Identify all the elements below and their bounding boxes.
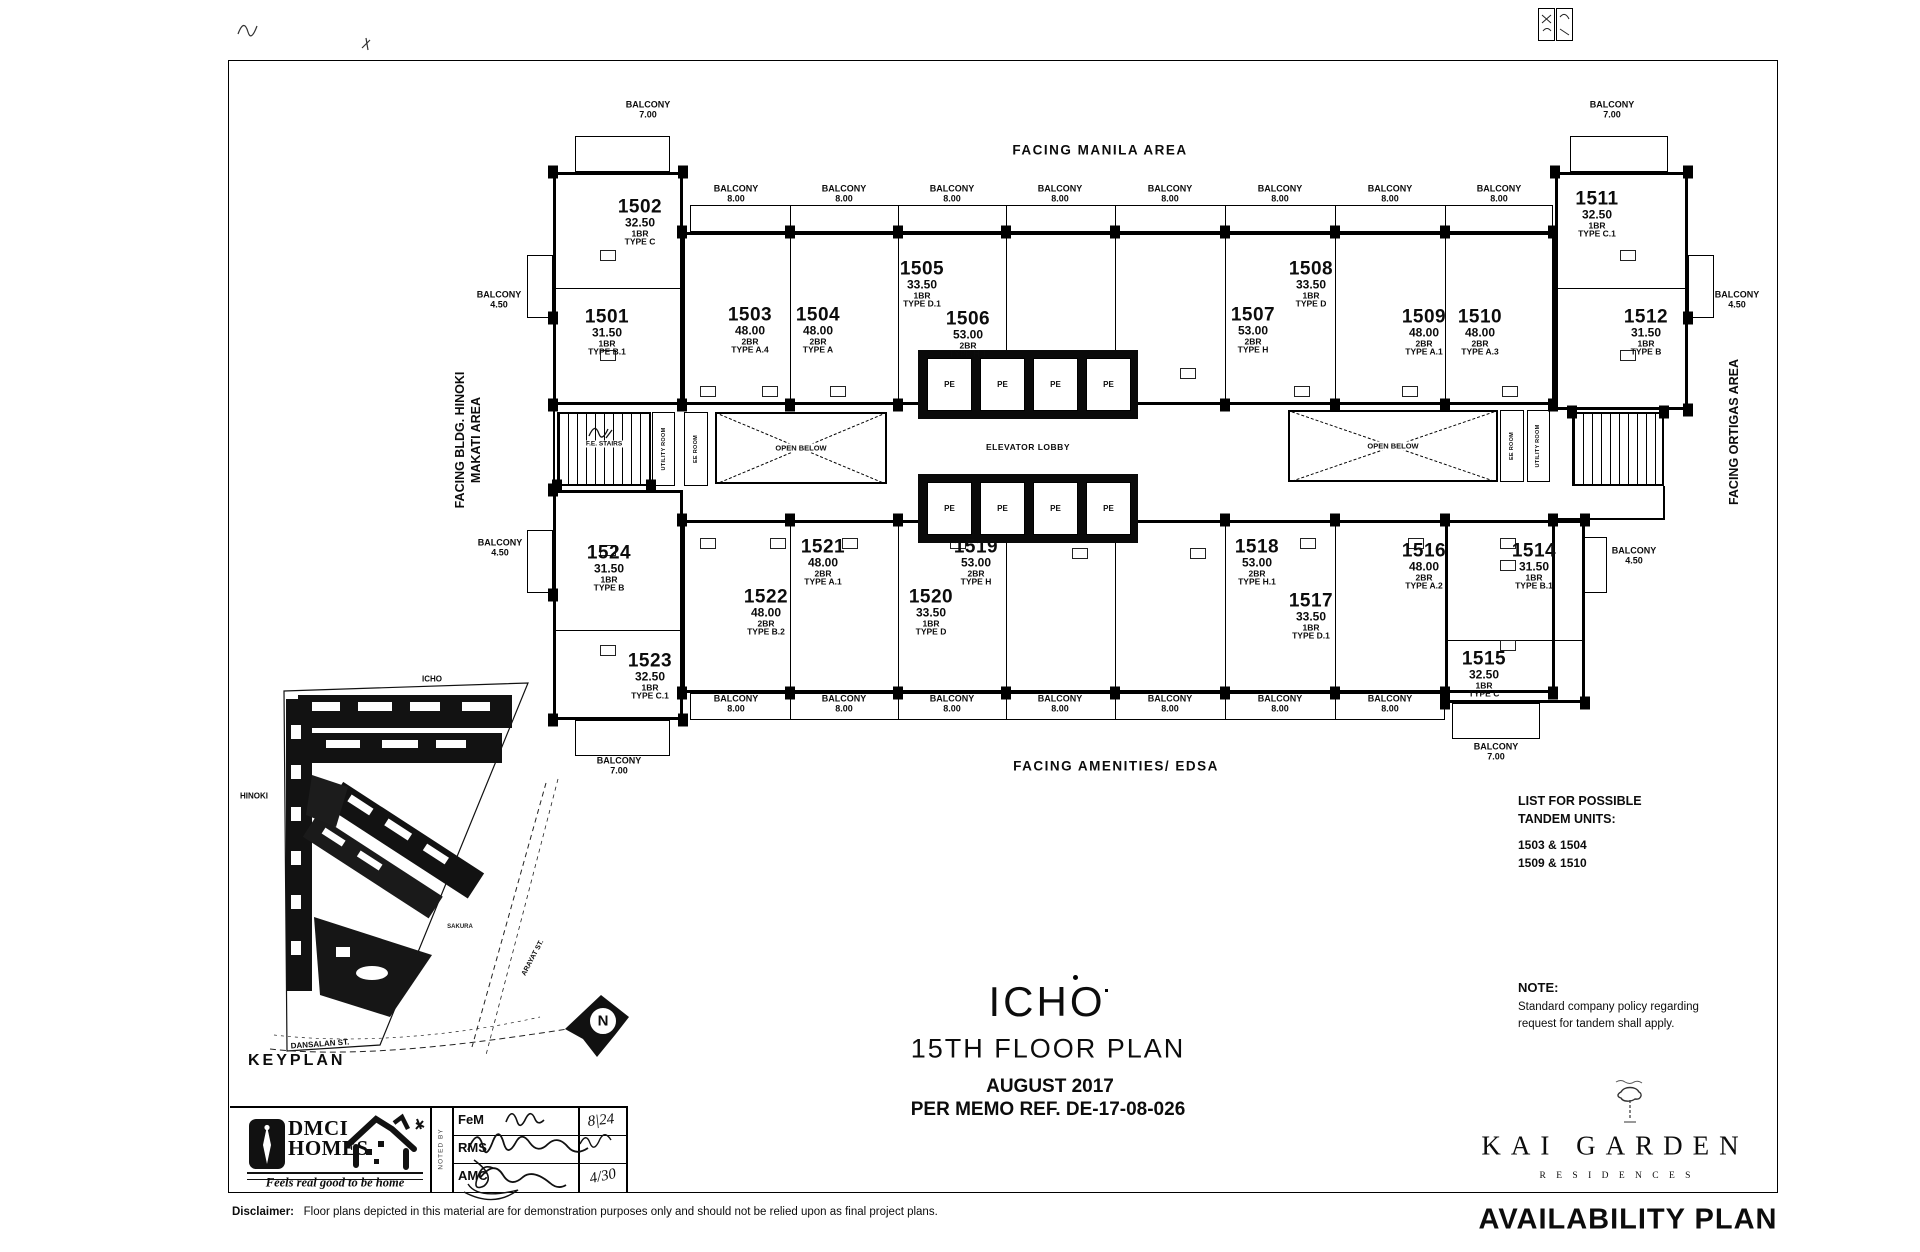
balcony-label: BALCONY8.00: [822, 694, 867, 715]
wall-line: [1335, 232, 1336, 405]
balcony-label: BALCONY7.00: [1590, 100, 1635, 121]
balcony-value: 8.00: [822, 704, 867, 714]
unit-area: 53.00: [1235, 557, 1279, 569]
unit-type: TYPE B.1: [585, 348, 629, 357]
unit-label-1508: 150833.501BRTYPE D: [1289, 260, 1333, 309]
balcony-label: BALCONY4.50: [1612, 546, 1657, 567]
unit-area: 48.00: [1402, 561, 1446, 573]
elevator-lobby-label: ELEVATOR LOBBY: [986, 442, 1070, 452]
unit-area: 33.50: [1289, 611, 1333, 623]
unit-label-1506: 150653.002BRTYPE H.1: [946, 310, 990, 359]
note-heading: NOTE:: [1518, 980, 1558, 995]
unit-type: TYPE D.1: [1289, 632, 1333, 641]
note-body: Standard company policy regarding reques…: [1518, 999, 1699, 1032]
wall-line: [1555, 288, 1688, 289]
balcony-label: BALCONY4.50: [477, 290, 522, 311]
wall-line: [1115, 520, 1116, 693]
unit-type: TYPE A.3: [1458, 348, 1502, 357]
wall-line: [1225, 232, 1226, 405]
disclaimer: Disclaimer: Floor plans depicted in this…: [232, 1206, 938, 1218]
unit-number: 1522: [744, 588, 788, 607]
unit-label-1505: 150533.501BRTYPE D.1: [900, 260, 944, 309]
unit-label-1519: 151953.002BRTYPE H: [954, 538, 998, 587]
unit-label-1514: 151431.501BRTYPE B.1: [1512, 542, 1556, 591]
unit-label-1504: 150448.002BRTYPE A: [796, 306, 840, 355]
unit-type: TYPE H.1: [946, 350, 990, 359]
column-block: [1440, 226, 1450, 239]
unit-type: TYPE D.1: [900, 300, 944, 309]
column-block: [1567, 406, 1577, 419]
wall-line: [1225, 520, 1226, 693]
facing-manila-label: FACING MANILA AREA: [1012, 143, 1187, 158]
balcony-label: BALCONY8.00: [930, 184, 975, 205]
unit-type: TYPE H: [954, 578, 998, 587]
balcony-sw: [575, 720, 670, 756]
column-block: [1330, 687, 1340, 700]
balcony-word: BALCONY: [930, 694, 975, 704]
keyplan-title: KEYPLAN: [248, 1052, 345, 1070]
residences-wordmark: R E S I D E N C E S: [1540, 1171, 1695, 1181]
column-block: [1220, 687, 1230, 700]
balcony-label: BALCONY8.00: [822, 184, 867, 205]
balcony-se: [1452, 703, 1540, 739]
unit-label-1520: 152033.501BRTYPE D: [909, 588, 953, 637]
unit-area: 53.00: [946, 329, 990, 341]
dmci-logo-icon: [249, 1119, 285, 1169]
unit-number: 1502: [618, 198, 662, 217]
fixture: [1294, 386, 1310, 397]
balcony-label: BALCONY4.50: [478, 538, 523, 559]
fixture: [830, 386, 846, 397]
unit-type: TYPE B: [1624, 348, 1668, 357]
balcony-label: BALCONY8.00: [1258, 184, 1303, 205]
column-block: [1659, 406, 1669, 419]
balcony-tab: [1688, 255, 1714, 318]
column-block: [1330, 514, 1340, 527]
column-block: [1440, 697, 1450, 710]
unit-type: TYPE C: [1462, 690, 1506, 699]
unit-number: 1507: [1231, 306, 1275, 325]
plan-subtitle: 15TH FLOOR PLAN: [911, 1034, 1186, 1065]
unit-type: TYPE D: [909, 628, 953, 637]
unit-label-1501: 150131.501BRTYPE B.1: [585, 308, 629, 357]
unit-type: TYPE A.4: [728, 346, 772, 355]
column-block: [785, 226, 795, 239]
balcony-word: BALCONY: [597, 756, 642, 766]
plan-title: ICHO: [989, 978, 1106, 1026]
unit-area: 33.50: [900, 279, 944, 291]
unit-label-1517: 151733.501BRTYPE D.1: [1289, 592, 1333, 641]
fixture: [1502, 386, 1518, 397]
column-block: [548, 312, 558, 325]
wall-line: [553, 405, 555, 490]
availability-plan-sheet: FACING MANILA AREA FACING AMENITIES/ EDS…: [0, 0, 1920, 1252]
fe-stairs-east: [1572, 412, 1664, 486]
house-doodle-icon: [344, 1113, 426, 1171]
balcony-value: 7.00: [626, 110, 671, 120]
balcony-label: BALCONY4.50: [1715, 290, 1760, 311]
balcony-word: BALCONY: [930, 184, 975, 194]
unit-number: 1509: [1402, 308, 1446, 327]
ee-room-label: EE ROOM: [1509, 432, 1515, 460]
ee-room-label: EE ROOM: [693, 435, 699, 463]
utility-room-label: UTILITY ROOM: [661, 428, 667, 471]
tandem-heading-line2: TANDEM UNITS:: [1518, 810, 1642, 828]
column-block: [548, 589, 558, 602]
balcony-tab: [1583, 537, 1607, 593]
title-speck: [1105, 989, 1108, 992]
unit-type: TYPE A.1: [801, 578, 845, 587]
balcony-value: 8.00: [1038, 194, 1083, 204]
unit-label-1510: 151048.002BRTYPE A.3: [1458, 308, 1502, 357]
balcony-ne: [1570, 136, 1668, 172]
fixture: [1402, 386, 1418, 397]
unit-number: 1501: [585, 308, 629, 327]
open-below-label: OPEN BELOW: [773, 444, 828, 453]
balcony-word: BALCONY: [1590, 100, 1635, 110]
column-block: [1440, 514, 1450, 527]
tree-icon: [1612, 1078, 1646, 1126]
elevator-cab: PE: [1033, 358, 1078, 411]
open-below-label: OPEN BELOW: [1365, 442, 1420, 451]
elevator-cab: PE: [980, 358, 1025, 411]
balcony-value: 7.00: [1590, 110, 1635, 120]
fixture: [1620, 250, 1636, 261]
elevator-cab: PE: [927, 482, 972, 535]
fixture: [1072, 548, 1088, 559]
elevator-cab: PE: [980, 482, 1025, 535]
north-letter: N: [598, 1013, 609, 1030]
unit-number: 1515: [1462, 650, 1506, 669]
fixture: [600, 645, 616, 656]
balcony-word: BALCONY: [1368, 184, 1413, 194]
column-block: [785, 399, 795, 412]
balcony-value: 4.50: [1612, 556, 1657, 566]
balcony-value: 4.50: [478, 548, 523, 558]
column-block: [1220, 399, 1230, 412]
balcony-word: BALCONY: [1258, 694, 1303, 704]
elevator-cab: PE: [927, 358, 972, 411]
balcony-label: BALCONY8.00: [1368, 184, 1413, 205]
balcony-word: BALCONY: [1258, 184, 1303, 194]
facing-ortigas-label: FACING ORTIGAS AREA: [1727, 359, 1741, 505]
wall-line: [1585, 518, 1665, 520]
balcony-tab: [527, 255, 553, 318]
column-block: [1220, 226, 1230, 239]
column-block: [893, 226, 903, 239]
unit-area: 48.00: [1458, 327, 1502, 339]
balcony-word: BALCONY: [626, 100, 671, 110]
unit-label-1522: 152248.002BRTYPE B.2: [744, 588, 788, 637]
unit-type: TYPE C: [618, 238, 662, 247]
balcony-tab: [527, 530, 553, 593]
availability-plan-label: AVAILABILITY PLAN: [1479, 1204, 1778, 1237]
unit-type: TYPE H.1: [1235, 578, 1279, 587]
unit-label-1521: 152148.002BRTYPE A.1: [801, 538, 845, 587]
keyplan-icho-label: ICHO: [422, 675, 442, 684]
column-block: [785, 514, 795, 527]
unit-area: 53.00: [954, 557, 998, 569]
unit-number: 1524: [587, 544, 631, 563]
unit-number: 1517: [1289, 592, 1333, 611]
balcony-word: BALCONY: [714, 184, 759, 194]
tandem-pair: 1503 & 1504: [1518, 836, 1587, 854]
unit-label-1518: 151853.002BRTYPE H.1: [1235, 538, 1279, 587]
unit-number: 1504: [796, 306, 840, 325]
keyplan-sakura-label: SAKURA: [447, 924, 473, 930]
column-block: [1683, 312, 1693, 325]
plan-memo-ref: PER MEMO REF. DE-17-08-026: [911, 1099, 1186, 1121]
balcony-value: 8.00: [1258, 704, 1303, 714]
balcony-label: BALCONY8.00: [1477, 184, 1522, 205]
unit-label-1512: 151231.501BRTYPE B: [1624, 308, 1668, 357]
column-block: [1548, 399, 1558, 412]
elevator-cab: PE: [1086, 358, 1131, 411]
unit-area: 31.50: [1624, 327, 1668, 339]
unit-area: 48.00: [801, 557, 845, 569]
pen-note-icon: [584, 418, 618, 444]
unit-number: 1520: [909, 588, 953, 607]
unit-area: 31.50: [1512, 561, 1556, 573]
facing-amenities-label: FACING AMENITIES/ EDSA: [1013, 759, 1219, 774]
balcony-word: BALCONY: [1477, 184, 1522, 194]
balcony-value: 8.00: [1368, 704, 1413, 714]
balcony-label: BALCONY8.00: [1368, 694, 1413, 715]
column-block: [552, 480, 562, 493]
column-block: [1440, 399, 1450, 412]
unit-area: 32.50: [1462, 669, 1506, 681]
balcony-value: 8.00: [714, 194, 759, 204]
column-block: [1110, 226, 1120, 239]
unit-type: TYPE H: [1231, 346, 1275, 355]
wall-line: [1006, 520, 1007, 693]
column-block: [1580, 697, 1590, 710]
elevator-cab: PE: [1086, 482, 1131, 535]
column-block: [548, 399, 558, 412]
tandem-list-heading: LIST FOR POSSIBLE TANDEM UNITS:: [1518, 792, 1642, 828]
note-line1: Standard company policy regarding: [1518, 999, 1699, 1016]
unit-label-1516: 151648.002BRTYPE A.2: [1402, 542, 1446, 591]
balcony-word: BALCONY: [1612, 546, 1657, 556]
tandem-pairs: 1503 & 1504 1509 & 1510: [1518, 836, 1587, 872]
keyplan-map: [240, 655, 580, 1065]
balcony-label: BALCONY8.00: [714, 694, 759, 715]
balcony-word: BALCONY: [478, 538, 523, 548]
fixture: [1190, 548, 1206, 559]
unit-area: 48.00: [1402, 327, 1446, 339]
column-block: [1548, 687, 1558, 700]
balcony-nw: [575, 136, 670, 172]
column-block: [893, 399, 903, 412]
balcony-word: BALCONY: [1038, 184, 1083, 194]
balcony-value: 7.00: [597, 766, 642, 776]
unit-type: TYPE A: [796, 346, 840, 355]
unit-area: 32.50: [1575, 209, 1618, 221]
balcony-label: BALCONY7.00: [626, 100, 671, 121]
unit-number: 1503: [728, 306, 772, 325]
fixture: [770, 538, 786, 549]
column-block: [1580, 514, 1590, 527]
unit-type: TYPE B: [587, 584, 631, 593]
column-block: [1550, 166, 1560, 179]
facing-hinoki-label: FACING BLDG. HINOKI MAKATI AREA: [452, 372, 485, 509]
dmci-tagline: Feels real good to be home: [266, 1176, 405, 1191]
unit-label-1509: 150948.002BRTYPE A.1: [1402, 308, 1446, 357]
fixture: [1300, 538, 1316, 549]
unit-number: 1523: [628, 652, 672, 671]
balcony-value: 8.00: [822, 194, 867, 204]
column-block: [1330, 399, 1340, 412]
balcony-value: 8.00: [1148, 704, 1193, 714]
balcony-value: 8.00: [1477, 194, 1522, 204]
column-block: [678, 166, 688, 179]
balcony-word: BALCONY: [1038, 694, 1083, 704]
balcony-value: 7.00: [1474, 752, 1519, 762]
column-block: [785, 687, 795, 700]
fixture: [1180, 368, 1196, 379]
column-block: [677, 226, 687, 239]
unit-label-1507: 150753.002BRTYPE H: [1231, 306, 1275, 355]
unit-number: 1511: [1575, 190, 1618, 209]
unit-area: 53.00: [1231, 325, 1275, 337]
title-dot: [1073, 975, 1078, 980]
column-block: [677, 399, 687, 412]
balcony-label: BALCONY8.00: [1148, 184, 1193, 205]
unit-number: 1516: [1402, 542, 1446, 561]
unit-number: 1514: [1512, 542, 1556, 561]
balcony-label: BALCONY8.00: [1038, 694, 1083, 715]
wall-line: [1335, 520, 1336, 693]
balcony-label: BALCONY8.00: [1258, 694, 1303, 715]
unit-number: 1505: [900, 260, 944, 279]
unit-area: 48.00: [796, 325, 840, 337]
balcony-word: BALCONY: [1715, 290, 1760, 300]
unit-type: TYPE C.1: [1575, 230, 1618, 239]
column-block: [893, 514, 903, 527]
balcony-value: 8.00: [1148, 194, 1193, 204]
column-block: [678, 714, 688, 727]
column-block: [1001, 226, 1011, 239]
unit-area: 33.50: [909, 607, 953, 619]
fixture: [600, 250, 616, 261]
tandem-heading-line1: LIST FOR POSSIBLE: [1518, 792, 1642, 810]
wall-line: [1663, 486, 1665, 520]
wall-line: [553, 288, 683, 289]
unit-label-1511: 151132.501BRTYPE C.1: [1575, 190, 1618, 239]
balcony-value: 8.00: [930, 704, 975, 714]
unit-label-1515: 151532.501BRTYPE C: [1462, 650, 1506, 699]
column-block: [1001, 687, 1011, 700]
plan-date: AUGUST 2017: [986, 1076, 1114, 1098]
balcony-label: BALCONY7.00: [597, 756, 642, 777]
unit-number: 1519: [954, 538, 998, 557]
disclaimer-label: Disclaimer:: [232, 1206, 294, 1218]
unit-area: 33.50: [1289, 279, 1333, 291]
unit-number: 1508: [1289, 260, 1333, 279]
balcony-label: BALCONY8.00: [930, 694, 975, 715]
wall-line: [790, 520, 791, 693]
unit-type: TYPE B.2: [744, 628, 788, 637]
unit-number: 1510: [1458, 308, 1502, 327]
elevator-cab: PE: [1033, 482, 1078, 535]
column-block: [1110, 687, 1120, 700]
fixture: [700, 538, 716, 549]
note-line2: request for tandem shall apply.: [1518, 1016, 1699, 1033]
wall-line: [553, 630, 683, 631]
facing-hinoki-line2: MAKATI AREA: [468, 372, 484, 509]
fixture: [700, 386, 716, 397]
unit-type: TYPE C.1: [628, 692, 672, 701]
balcony-label: BALCONY8.00: [1038, 184, 1083, 205]
unit-number: 1518: [1235, 538, 1279, 557]
unit-number: 1521: [801, 538, 845, 557]
column-block: [893, 687, 903, 700]
unit-area: 32.50: [628, 671, 672, 683]
unit-number: 1512: [1624, 308, 1668, 327]
column-block: [548, 166, 558, 179]
balcony-value: 4.50: [477, 300, 522, 310]
tandem-pair: 1509 & 1510: [1518, 854, 1587, 872]
balcony-label: BALCONY7.00: [1474, 742, 1519, 763]
balcony-value: 8.00: [1038, 704, 1083, 714]
fixture: [762, 386, 778, 397]
column-block: [1548, 226, 1558, 239]
unit-type: TYPE A.2: [1402, 582, 1446, 591]
unit-area: 48.00: [744, 607, 788, 619]
balcony-label: BALCONY8.00: [1148, 694, 1193, 715]
balcony-value: 8.00: [1258, 194, 1303, 204]
kai-garden-wordmark: KAI GARDEN: [1481, 1131, 1748, 1162]
column-block: [1330, 226, 1340, 239]
balcony-value: 8.00: [930, 194, 975, 204]
disclaimer-text: Floor plans depicted in this material ar…: [304, 1206, 938, 1218]
column-block: [646, 480, 656, 493]
wall-line: [790, 232, 791, 405]
column-block: [1548, 514, 1558, 527]
unit-area: 31.50: [585, 327, 629, 339]
unit-area: 48.00: [728, 325, 772, 337]
unit-area: 31.50: [587, 563, 631, 575]
unit-label-1523: 152332.501BRTYPE C.1: [628, 652, 672, 701]
balcony-label: BALCONY8.00: [714, 184, 759, 205]
balcony-word: BALCONY: [822, 184, 867, 194]
unit-area: 32.50: [618, 217, 662, 229]
column-block: [1220, 514, 1230, 527]
balcony-word: BALCONY: [1148, 184, 1193, 194]
column-block: [677, 687, 687, 700]
balcony-value: 4.50: [1715, 300, 1760, 310]
unit-label-1524: 152431.501BRTYPE B: [587, 544, 631, 593]
balcony-strip-north: [690, 205, 1553, 232]
unit-label-1502: 150232.501BRTYPE C: [618, 198, 662, 247]
signatures: [430, 1098, 640, 1202]
balcony-word: BALCONY: [477, 290, 522, 300]
unit-type: TYPE A.1: [1402, 348, 1446, 357]
balcony-value: 8.00: [1368, 194, 1413, 204]
balcony-word: BALCONY: [1368, 694, 1413, 704]
keyplan-hinoki-label: HINOKI: [240, 792, 268, 801]
unit-type: TYPE D: [1289, 300, 1333, 309]
column-block: [1683, 404, 1693, 417]
wall-line: [898, 520, 899, 693]
facing-hinoki-line1: FACING BLDG. HINOKI: [452, 372, 468, 509]
balcony-word: BALCONY: [822, 694, 867, 704]
balcony-value: 8.00: [714, 704, 759, 714]
balcony-word: BALCONY: [714, 694, 759, 704]
unit-label-1503: 150348.002BRTYPE A.4: [728, 306, 772, 355]
unit-type: TYPE B.1: [1512, 582, 1556, 591]
unit-number: 1506: [946, 310, 990, 329]
